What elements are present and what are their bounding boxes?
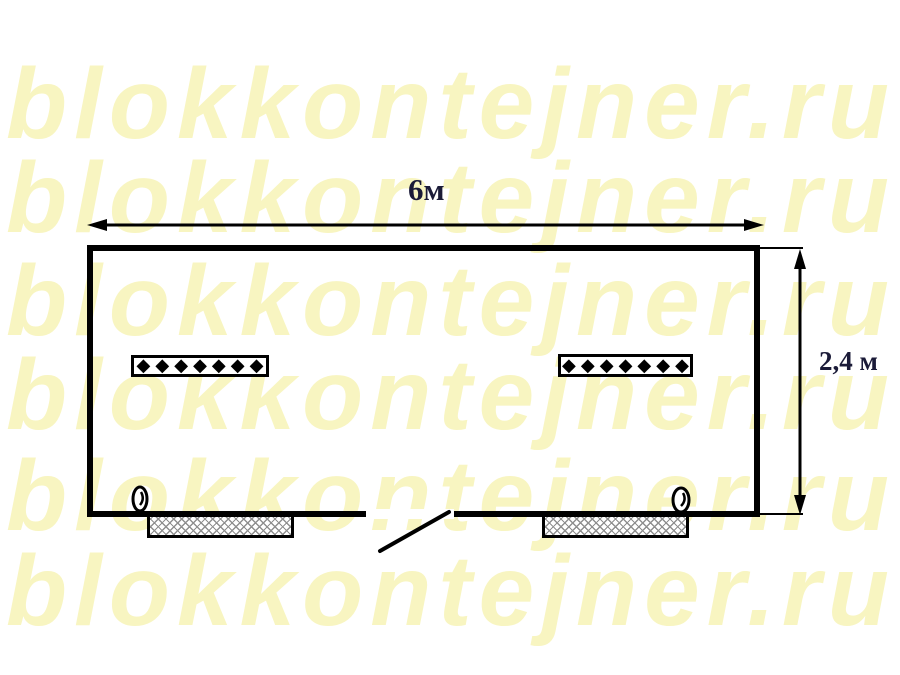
width-dimension-arrow — [87, 219, 764, 231]
door-leaf — [380, 512, 449, 551]
floor-plan-page: blokkontejner.ru blokkontejner.ru blokko… — [0, 0, 900, 675]
height-dimension-label: 2,4 м — [819, 346, 878, 377]
plan-linework — [0, 0, 900, 675]
width-dimension-label: 6м — [408, 172, 445, 208]
container-floor-plan: ◆◆◆◆◆◆◆ ◆◆◆◆◆◆◆ — [0, 0, 900, 675]
lamp-icon — [673, 488, 689, 512]
height-dimension-arrow — [760, 248, 806, 515]
lamp-icon — [133, 487, 147, 511]
